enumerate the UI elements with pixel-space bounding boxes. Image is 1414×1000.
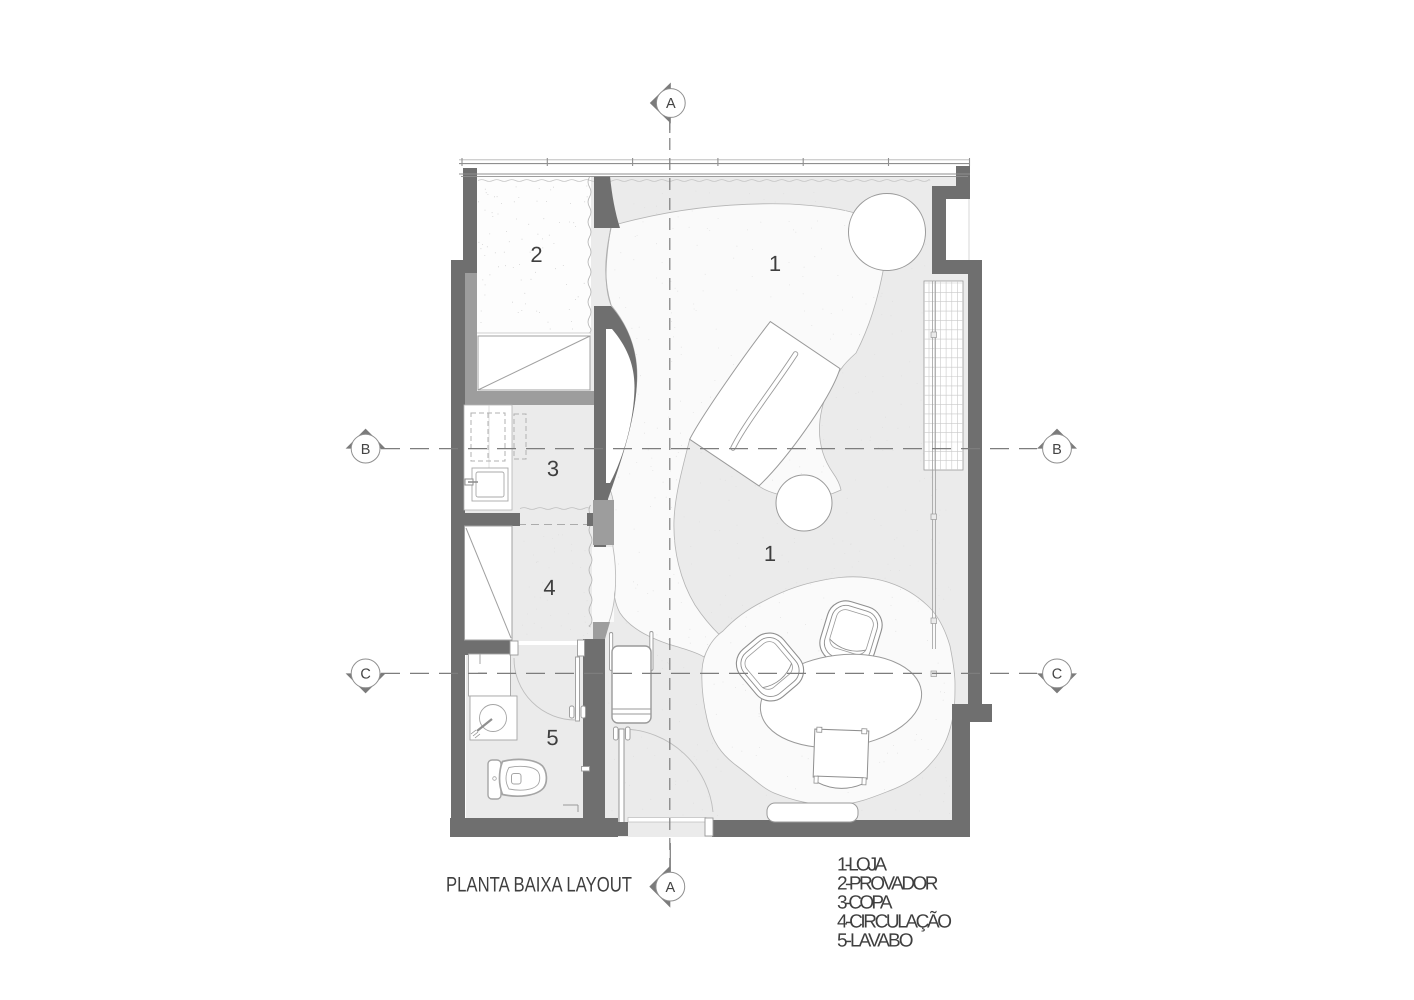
svg-text:2: 2 (530, 242, 542, 267)
svg-text:5: 5 (546, 725, 558, 750)
svg-text:1: 1 (769, 251, 781, 276)
svg-text:4-CIRCULAÇÃO: 4-CIRCULAÇÃO (837, 911, 952, 933)
svg-text:3-COPA: 3-COPA (837, 893, 893, 914)
svg-text:3: 3 (547, 456, 559, 481)
svg-text:B: B (1052, 442, 1062, 458)
svg-text:PLANTA BAIXA LAYOUT: PLANTA BAIXA LAYOUT (446, 874, 632, 897)
svg-text:B: B (361, 442, 371, 458)
svg-text:C: C (360, 667, 370, 683)
svg-text:4: 4 (543, 575, 555, 600)
svg-text:5-LAVABO: 5-LAVABO (837, 931, 914, 952)
svg-text:1-LOJA: 1-LOJA (837, 855, 887, 876)
svg-text:C: C (1052, 667, 1062, 683)
svg-text:1: 1 (764, 541, 776, 566)
svg-text:2-PROVADOR: 2-PROVADOR (837, 874, 939, 895)
svg-text:A: A (666, 96, 676, 112)
svg-text:A: A (665, 880, 675, 896)
